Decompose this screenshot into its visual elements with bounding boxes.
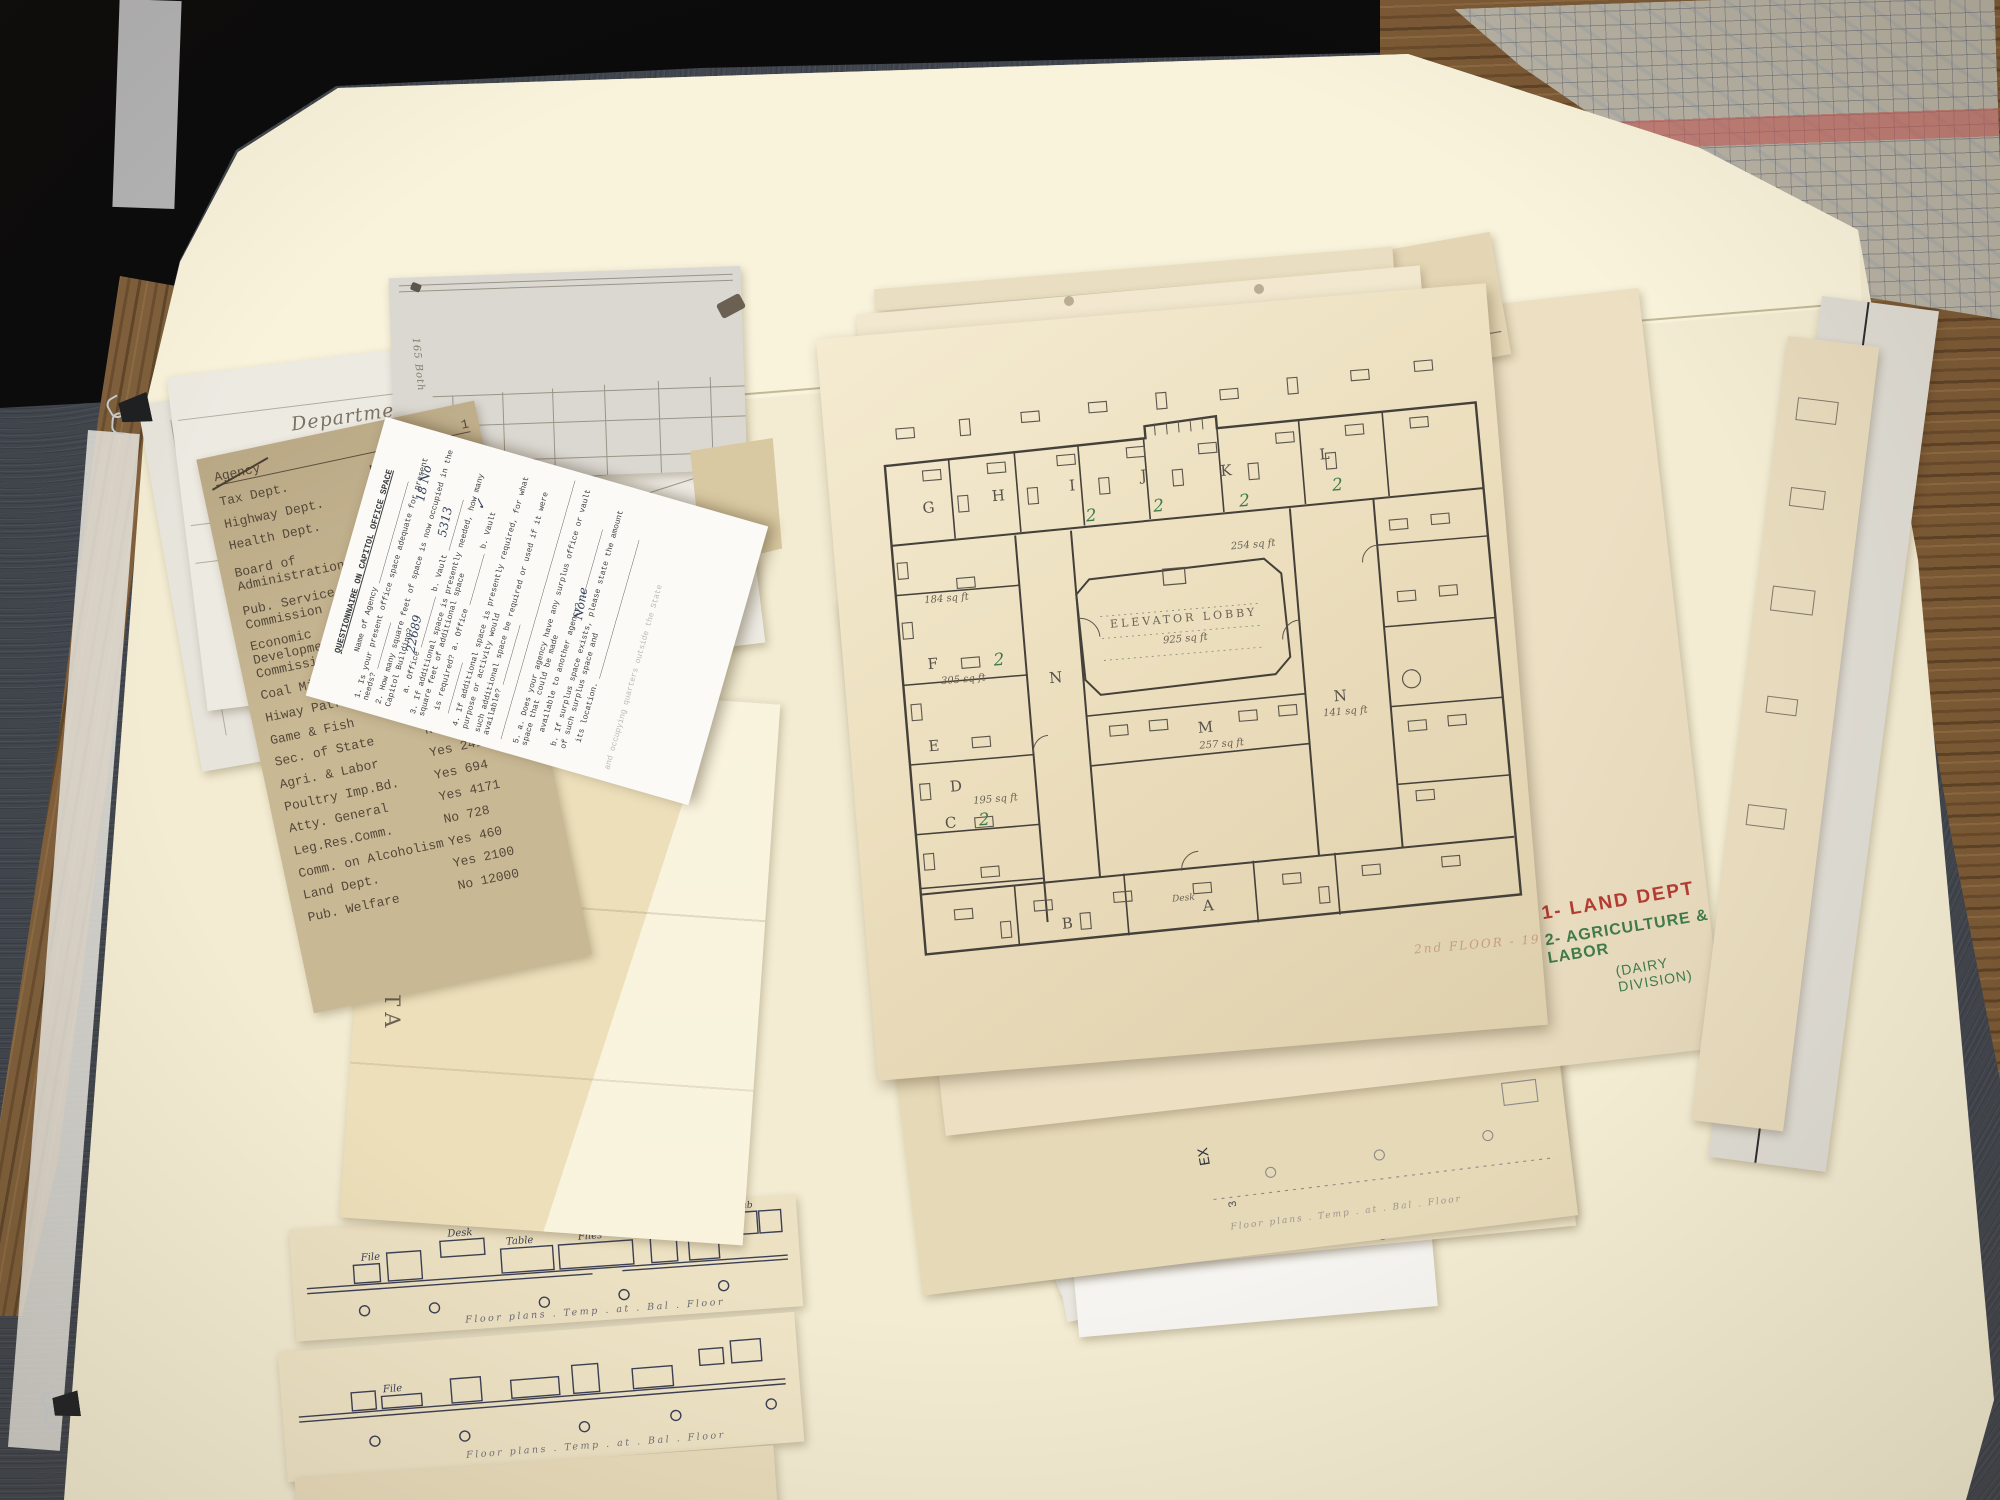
svg-text:D: D — [949, 777, 962, 796]
svg-text:2: 2 — [992, 650, 1005, 671]
svg-text:N: N — [1048, 668, 1063, 687]
svg-text:J: J — [1138, 466, 1147, 485]
floor-plan-sheet: G H I J K L F N M N E D C B A 184 sq ft … — [816, 283, 1548, 1081]
svg-text:2: 2 — [1151, 496, 1164, 517]
svg-text:File: File — [382, 1383, 403, 1396]
svg-text:2nd FLOOR - 1961: 2nd FLOOR - 1961 — [1413, 930, 1548, 956]
agency-list-header-col: 1 — [460, 416, 471, 432]
svg-text:2: 2 — [1330, 475, 1343, 496]
svg-text:A: A — [1201, 896, 1214, 915]
svg-text:N: N — [1333, 686, 1348, 705]
svg-text:K: K — [1220, 461, 1233, 480]
svg-text:184 sq ft: 184 sq ft — [924, 591, 970, 606]
floor-plan-legend: 1- LAND DEPT 2- AGRICULTURE & LABOR (DAI… — [1540, 879, 1718, 1002]
svg-text:2: 2 — [1084, 506, 1097, 527]
svg-text:141 sq ft: 141 sq ft — [1323, 704, 1369, 719]
svg-text:C: C — [944, 813, 957, 832]
punch-hole — [1254, 284, 1264, 294]
svg-text:925 sq ft: 925 sq ft — [1163, 632, 1209, 647]
svg-text:E: E — [928, 737, 940, 756]
svg-text:H: H — [991, 486, 1006, 505]
svg-text:Desk: Desk — [446, 1227, 473, 1240]
svg-text:2: 2 — [977, 810, 990, 831]
svg-text:257 sq ft: 257 sq ft — [1198, 737, 1245, 752]
svg-text:Floor plans . Temp . at . Bal: Floor plans . Temp . at . Bal . Floor — [1229, 1194, 1462, 1232]
svg-text:2: 2 — [1237, 491, 1250, 512]
svg-text:File: File — [359, 1252, 380, 1264]
svg-text:254 sq ft: 254 sq ft — [1229, 538, 1276, 553]
ex-side-text: EX — [1195, 1146, 1215, 1167]
svg-text:G: G — [922, 498, 935, 517]
svg-text:L: L — [1319, 445, 1330, 464]
floor-plan-drawing: G H I J K L F N M N E D C B A 184 sq ft … — [816, 283, 1548, 1081]
photo-archive-table: File Desk Table Files Tab Floor plans . … — [0, 0, 2000, 1500]
svg-text:M: M — [1197, 718, 1214, 737]
grey-frame-band — [112, 0, 181, 209]
svg-text:Desk: Desk — [1171, 893, 1195, 905]
svg-text:I: I — [1068, 476, 1075, 494]
punch-hole — [1064, 296, 1074, 306]
svg-text:F: F — [927, 654, 939, 673]
svg-text:Table: Table — [506, 1235, 534, 1248]
svg-text:B: B — [1061, 914, 1073, 933]
svg-text:195 sq ft: 195 sq ft — [973, 792, 1019, 807]
svg-text:305 sq ft: 305 sq ft — [941, 672, 987, 687]
